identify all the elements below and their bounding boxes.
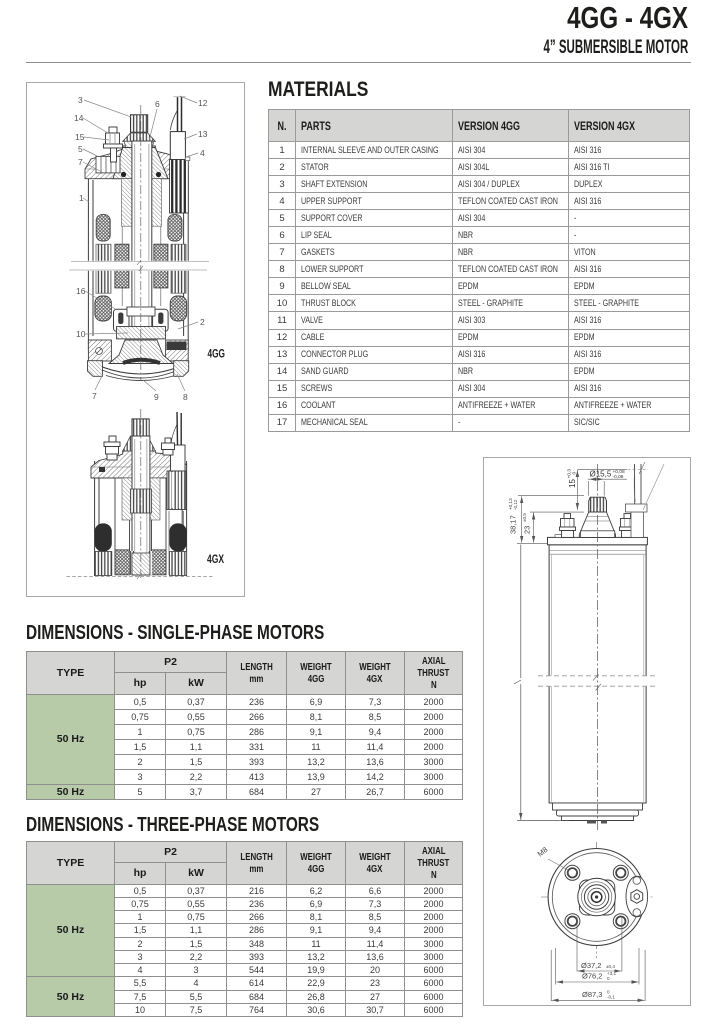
svg-text:Ø37,2: Ø37,2 [581,961,601,970]
svg-text:8: 8 [183,392,188,402]
svg-text:10: 10 [76,329,86,339]
svg-text:14: 14 [74,113,84,123]
svg-text:±0,4: ±0,4 [606,964,615,969]
svg-text:16: 16 [76,286,86,296]
svg-text:4GG: 4GG [208,347,226,361]
svg-text:15: 15 [568,479,577,488]
svg-text:-0,12: -0,12 [513,499,518,510]
svg-text:13: 13 [198,129,208,139]
svg-text:2: 2 [200,317,205,327]
svg-text:7: 7 [92,391,97,401]
svg-text:7: 7 [78,157,83,167]
svg-text:-0,08: -0,08 [613,474,624,480]
svg-text:15: 15 [75,132,85,142]
svg-text:6: 6 [155,99,160,109]
svg-text:38,17: 38,17 [509,515,518,534]
svg-text:4GX: 4GX [207,552,224,566]
svg-text:Ø87,3: Ø87,3 [582,990,602,999]
svg-text:-0,1: -0,1 [607,995,615,1000]
svg-text:±0,5: ±0,5 [522,513,527,522]
svg-text:5: 5 [78,144,83,154]
svg-text:Ø76,2: Ø76,2 [582,972,602,981]
svg-text:9: 9 [154,392,159,402]
svg-text:23: 23 [523,526,532,534]
svg-text:12: 12 [198,98,208,108]
svg-text:3: 3 [78,95,83,105]
svg-text:0: 0 [572,472,578,475]
svg-text:0: 0 [607,976,610,981]
svg-text:Ø15,5: Ø15,5 [590,470,612,479]
svg-text:4: 4 [200,148,205,158]
